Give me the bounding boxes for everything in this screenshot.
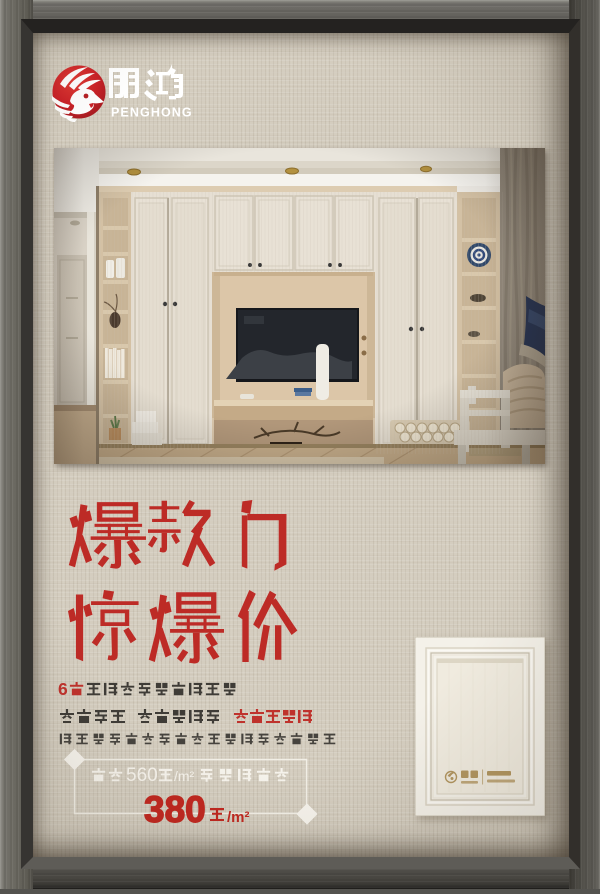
svg-text:/m²: /m² [174, 768, 195, 784]
svg-text:6: 6 [58, 679, 68, 699]
svg-text:560: 560 [126, 765, 158, 786]
svg-text:/m²: /m² [227, 809, 250, 826]
svg-text:380: 380 [144, 789, 206, 830]
